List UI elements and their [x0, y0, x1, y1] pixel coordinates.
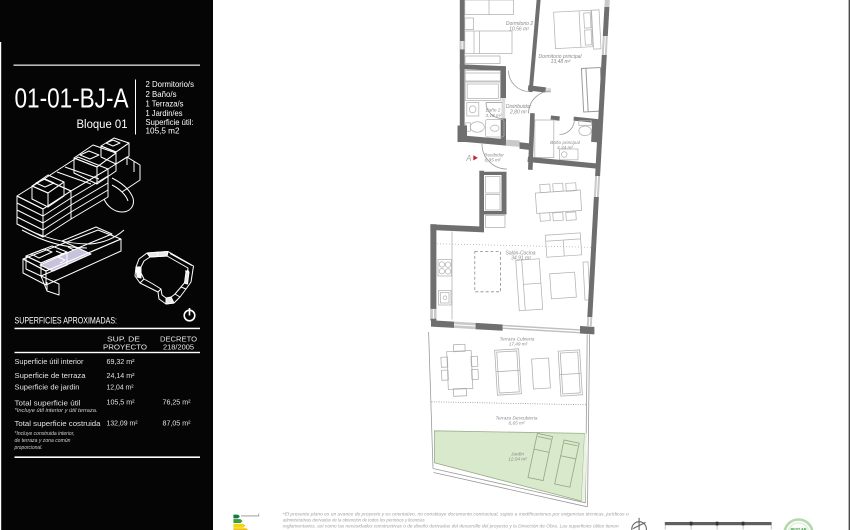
svg-text:A: A	[465, 154, 471, 163]
svg-text:Bloque 01: Bloque 01	[77, 117, 128, 131]
svg-text:2,80 m²: 2,80 m²	[509, 110, 527, 116]
svg-text:01-01-BJ-A: 01-01-BJ-A	[15, 83, 130, 114]
svg-text:PROYECTO: PROYECTO	[103, 345, 148, 352]
svg-text:1 Terraza/s: 1 Terraza/s	[146, 98, 184, 108]
svg-text:Total superficie útil: Total superficie útil	[15, 400, 81, 407]
svg-text:SUP. DE: SUP. DE	[107, 337, 140, 344]
svg-text:de terraza y zona común: de terraza y zona común	[15, 438, 71, 444]
svg-text:69,32 m²: 69,32 m²	[107, 359, 136, 366]
svg-text:SUPERFICIES APROXIMADAS:: SUPERFICIES APROXIMADAS:	[15, 316, 118, 326]
svg-text:34,91 m²: 34,91 m²	[511, 256, 531, 262]
svg-text:Superficie de terraza: Superficie de terraza	[15, 373, 86, 380]
svg-text:105,5 m2: 105,5 m2	[146, 126, 180, 136]
svg-text:105,5 m²: 105,5 m²	[107, 400, 136, 407]
svg-text:3,18 m²: 3,18 m²	[486, 113, 502, 118]
svg-text:DECRETO: DECRETO	[160, 337, 198, 344]
svg-text:administrativas derivadas de l: administrativas derivadas de la obtenció…	[283, 517, 426, 522]
svg-text:76,25 m²: 76,25 m²	[163, 400, 192, 407]
svg-text:2 Baño/s: 2 Baño/s	[146, 89, 177, 99]
svg-text:12,04 m²: 12,04 m²	[508, 457, 527, 462]
svg-text:132,09 m²: 132,09 m²	[107, 420, 139, 427]
svg-text:4,34 m²: 4,34 m²	[557, 145, 573, 150]
svg-text:10,56 m²: 10,56 m²	[509, 27, 529, 33]
svg-text:6,65 m²: 6,65 m²	[509, 421, 525, 426]
svg-text:87,05 m²: 87,05 m²	[163, 420, 192, 427]
svg-text:reglamentarios, así como las n: reglamentarios, así como las necesidades…	[283, 523, 620, 528]
svg-text:Total superficie costruida: Total superficie costruida	[15, 421, 101, 428]
svg-text:12,04 m²: 12,04 m²	[107, 385, 135, 392]
svg-text:17,49 m²: 17,49 m²	[509, 342, 528, 347]
svg-text:*Incluye útil interior y útil: *Incluye útil interior y útil terraza.	[15, 408, 98, 414]
svg-text:2 Dormitorio/s: 2 Dormitorio/s	[146, 79, 195, 89]
svg-text:13,48 m²: 13,48 m²	[551, 59, 571, 65]
svg-text:proporcional.: proporcional.	[14, 445, 43, 451]
svg-text:Superficie de jardin: Superficie de jardin	[15, 385, 80, 392]
svg-text:24,14 m²: 24,14 m²	[107, 373, 136, 380]
svg-text:Superficie útil interior: Superficie útil interior	[15, 359, 85, 366]
svg-text:6,95 m²: 6,95 m²	[485, 158, 501, 163]
svg-text:*El presente plano es un avanc: *El presente plano es un avance de proye…	[283, 511, 630, 516]
svg-text:218/2005: 218/2005	[163, 345, 194, 352]
svg-text:*Incluye construida interior,: *Incluye construida interior,	[15, 431, 75, 437]
